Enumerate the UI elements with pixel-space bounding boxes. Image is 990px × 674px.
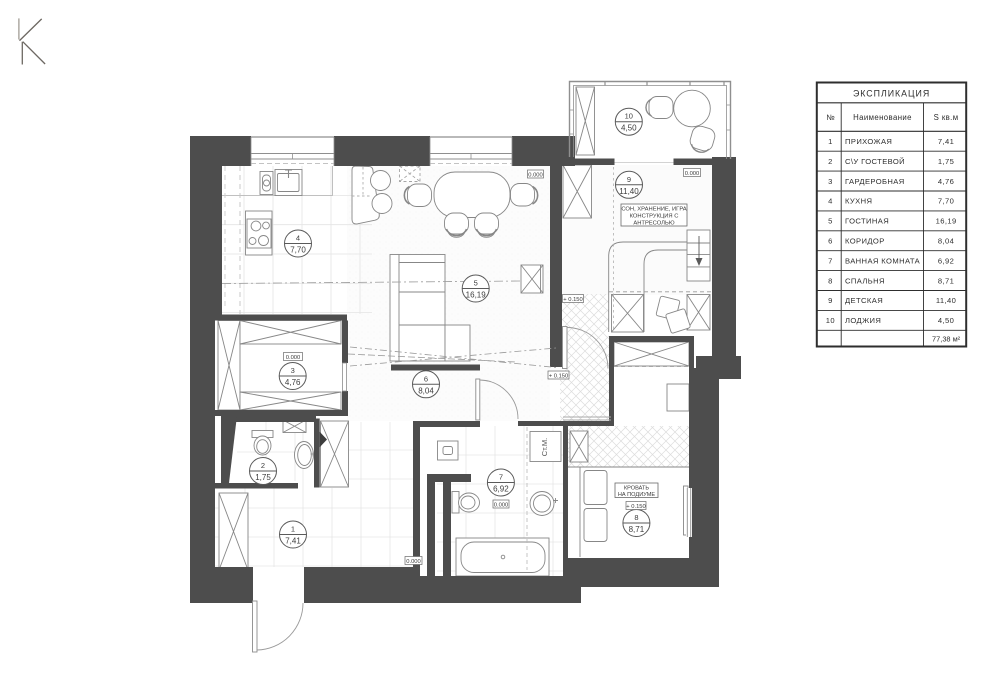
svg-text:8,04: 8,04 (418, 386, 434, 395)
svg-text:ГОСТИНАЯ: ГОСТИНАЯ (845, 217, 889, 226)
svg-text:10: 10 (826, 316, 835, 325)
svg-text:4: 4 (828, 197, 833, 206)
svg-text:7,41: 7,41 (938, 137, 954, 146)
svg-text:2: 2 (828, 157, 833, 166)
svg-text:16,19: 16,19 (936, 217, 957, 226)
svg-text:СПАЛЬНЯ: СПАЛЬНЯ (845, 276, 885, 285)
svg-text:7: 7 (499, 473, 503, 482)
svg-text:6,92: 6,92 (938, 256, 954, 265)
svg-text:16,19: 16,19 (466, 291, 487, 300)
svg-text:8,71: 8,71 (629, 525, 645, 534)
svg-text:ДЕТСКАЯ: ДЕТСКАЯ (845, 296, 883, 305)
svg-text:0.000: 0.000 (528, 173, 543, 179)
svg-text:0.000: 0.000 (286, 355, 301, 361)
svg-text:Ст.М.: Ст.М. (540, 438, 549, 456)
svg-text:2: 2 (261, 461, 265, 470)
svg-text:6: 6 (424, 374, 428, 383)
svg-text:5: 5 (474, 279, 478, 288)
svg-text:6: 6 (828, 237, 833, 246)
svg-text:4,50: 4,50 (621, 124, 637, 133)
svg-text:10: 10 (625, 112, 633, 121)
svg-text:4,76: 4,76 (938, 177, 954, 186)
svg-text:7,70: 7,70 (290, 246, 306, 255)
svg-text:4,50: 4,50 (938, 316, 954, 325)
svg-text:9: 9 (828, 296, 833, 305)
svg-text:S кв.м: S кв.м (934, 113, 959, 122)
svg-text:+ 0.150: + 0.150 (563, 297, 583, 303)
svg-text:ПРИХОЖАЯ: ПРИХОЖАЯ (845, 137, 892, 146)
svg-text:5: 5 (828, 217, 833, 226)
svg-text:ЭКСПЛИКАЦИЯ: ЭКСПЛИКАЦИЯ (853, 89, 930, 99)
svg-text:ГАРДЕРОБНАЯ: ГАРДЕРОБНАЯ (845, 177, 905, 186)
svg-text:7,70: 7,70 (938, 197, 954, 206)
svg-text:КУХНЯ: КУХНЯ (845, 197, 872, 206)
svg-text:8: 8 (828, 276, 833, 285)
svg-text:+ 0.150: + 0.150 (626, 504, 646, 510)
svg-text:№: № (826, 113, 834, 122)
svg-text:С\У ГОСТЕВОЙ: С\У ГОСТЕВОЙ (845, 157, 905, 166)
svg-text:1,75: 1,75 (938, 157, 954, 166)
svg-text:8,71: 8,71 (938, 276, 954, 285)
svg-text:7,41: 7,41 (285, 537, 301, 546)
svg-text:+ 0.150: + 0.150 (549, 374, 569, 380)
svg-text:0.000: 0.000 (685, 171, 700, 177)
svg-text:1,75: 1,75 (255, 473, 271, 482)
svg-text:НА ПОДИУМЕ: НА ПОДИУМЕ (618, 492, 656, 498)
svg-text:0.000: 0.000 (406, 559, 421, 565)
svg-text:9: 9 (627, 175, 631, 184)
svg-text:1: 1 (828, 137, 833, 146)
svg-text:КОРИДОР: КОРИДОР (845, 237, 885, 246)
svg-text:77,38 м²: 77,38 м² (932, 335, 961, 344)
svg-text:1: 1 (291, 525, 295, 534)
svg-text:КРОВАТЬ: КРОВАТЬ (624, 486, 649, 492)
svg-text:Наименование: Наименование (853, 113, 912, 122)
svg-text:КОНСТРУКЦИЯ С: КОНСТРУКЦИЯ С (630, 214, 679, 220)
svg-text:АНТРЕСОЛЬЮ: АНТРЕСОЛЬЮ (633, 221, 674, 227)
svg-text:8,04: 8,04 (938, 237, 954, 246)
svg-text:7: 7 (828, 256, 833, 265)
svg-text:ЛОДЖИЯ: ЛОДЖИЯ (845, 316, 881, 325)
svg-text:4: 4 (296, 234, 300, 243)
svg-text:8: 8 (634, 513, 638, 522)
svg-text:ВАННАЯ КОМНАТА: ВАННАЯ КОМНАТА (845, 256, 921, 265)
svg-text:4,76: 4,76 (285, 378, 301, 387)
svg-text:3: 3 (828, 177, 833, 186)
svg-text:11,40: 11,40 (619, 187, 639, 196)
svg-text:6,92: 6,92 (493, 485, 509, 494)
svg-text:11,40: 11,40 (936, 296, 956, 305)
svg-text:0.000: 0.000 (494, 503, 509, 509)
svg-text:СОН, ХРАНЕНИЕ, ИГРА: СОН, ХРАНЕНИЕ, ИГРА (621, 207, 686, 213)
svg-text:3: 3 (291, 366, 295, 375)
